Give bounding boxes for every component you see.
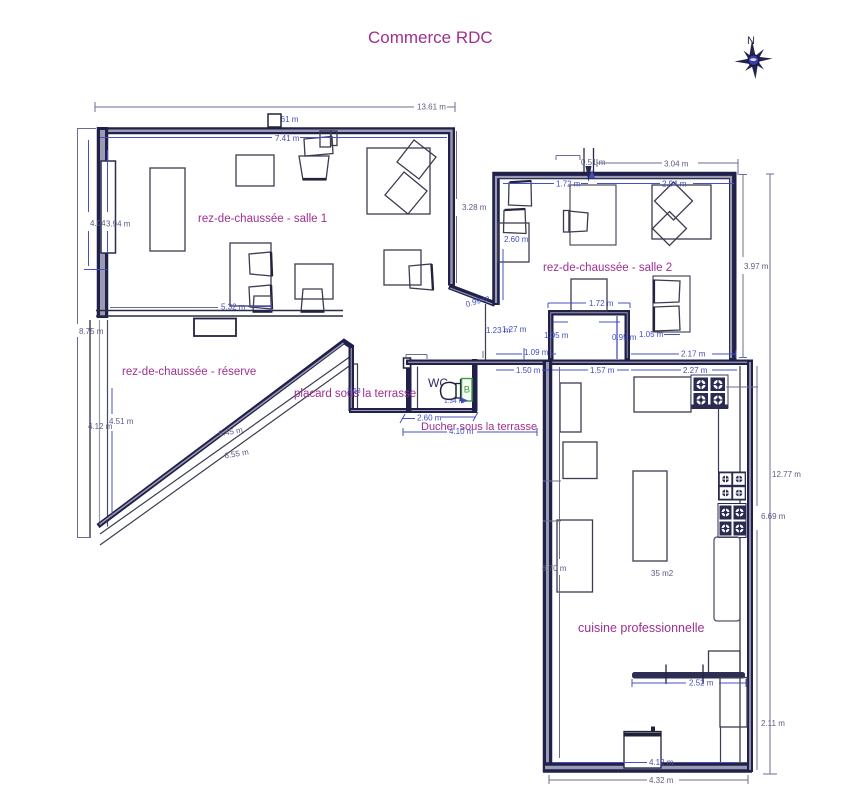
svg-text:cuisine professionnelle: cuisine professionnelle [578, 621, 705, 635]
svg-text:5.32 m: 5.32 m [221, 303, 246, 312]
svg-text:3.97 m: 3.97 m [744, 262, 769, 271]
svg-text:rez-de-chaussée - réserve: rez-de-chaussée - réserve [122, 366, 256, 378]
svg-text:8.75 m: 8.75 m [79, 327, 104, 336]
svg-text:6.69 m: 6.69 m [761, 512, 786, 521]
svg-text:Commerce RDC: Commerce RDC [368, 28, 493, 47]
svg-text:1.09 m: 1.09 m [524, 348, 549, 357]
svg-text:3.28 m: 3.28 m [462, 203, 487, 212]
svg-text:3.94 m: 3.94 m [106, 220, 131, 229]
svg-text:2.94 m: 2.94 m [662, 180, 687, 189]
svg-text:0.95 m: 0.95 m [612, 333, 637, 342]
svg-text:1.05 m: 1.05 m [544, 331, 569, 340]
svg-text:rez-de-chaussée - salle 2: rez-de-chaussée - salle 2 [543, 262, 672, 274]
svg-text:N: N [747, 35, 755, 47]
svg-text:2.52 m: 2.52 m [689, 679, 714, 688]
svg-text:7.41 m: 7.41 m [275, 134, 300, 143]
svg-text:4.10 m: 4.10 m [449, 427, 474, 436]
svg-text:13.61 m: 13.61 m [417, 103, 446, 112]
svg-text:3.04 m: 3.04 m [664, 160, 689, 169]
svg-text:2.17 m: 2.17 m [681, 350, 706, 359]
svg-text:2.11 m: 2.11 m [761, 719, 785, 728]
svg-text:1.34 m: 1.34 m [444, 398, 464, 405]
svg-text:4.51 m: 4.51 m [109, 417, 134, 426]
svg-text:8.70 m: 8.70 m [542, 564, 567, 573]
svg-text:1.05 m: 1.05 m [639, 330, 664, 339]
svg-text:35 m2: 35 m2 [651, 569, 674, 578]
svg-text:4.04: 4.04 [90, 219, 106, 228]
svg-text:B: B [464, 385, 470, 396]
svg-text:1.57 m: 1.57 m [590, 366, 615, 375]
svg-text:4.32 m: 4.32 m [649, 776, 674, 785]
svg-text:1.72 m: 1.72 m [556, 180, 581, 189]
svg-text:2.68: 2.68 [347, 388, 361, 395]
svg-text:12.77 m: 12.77 m [772, 470, 801, 479]
svg-text:2.27 m: 2.27 m [683, 366, 708, 375]
svg-text:2.60 m: 2.60 m [504, 235, 529, 244]
svg-text:1.50 m: 1.50 m [516, 366, 541, 375]
svg-text:rez-de-chaussée - salle 1: rez-de-chaussée - salle 1 [198, 213, 327, 225]
svg-text:2.60 m: 2.60 m [417, 414, 442, 423]
svg-text:1.27 m: 1.27 m [502, 325, 527, 334]
svg-text:Ducher sous la terrasse: Ducher sous la terrasse [421, 421, 537, 433]
svg-text:1.72 m: 1.72 m [589, 299, 614, 308]
svg-text:4.12 m: 4.12 m [649, 758, 674, 767]
